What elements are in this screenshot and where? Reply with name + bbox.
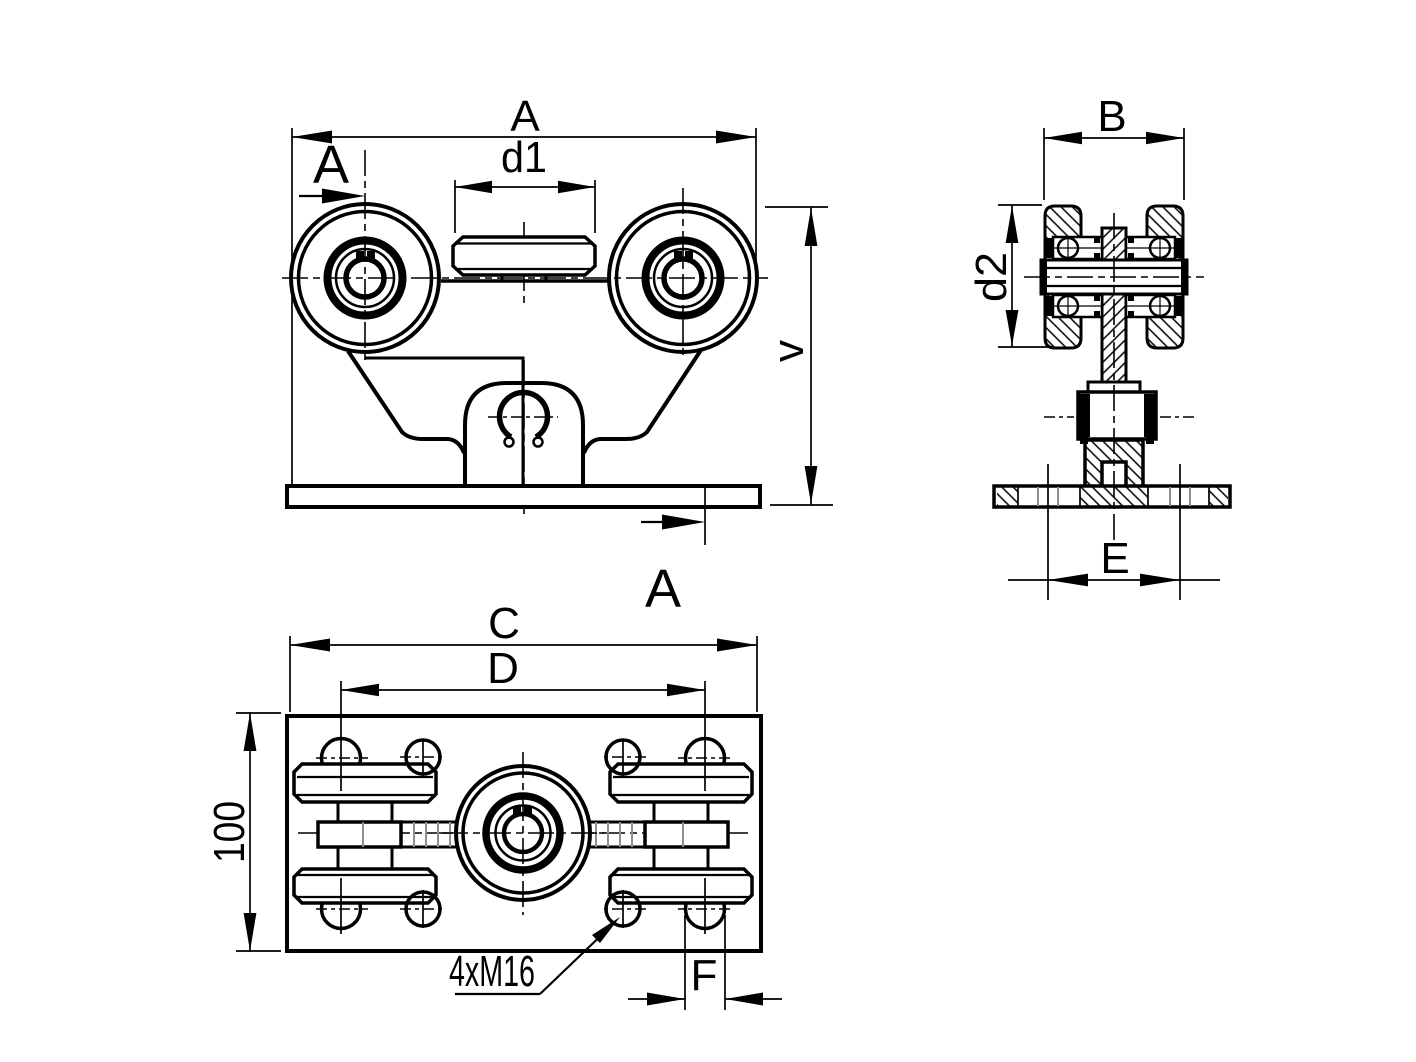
base-plate-section (994, 486, 1230, 507)
base-plate (287, 486, 760, 507)
section-letter-bottom: A (645, 559, 681, 619)
guide-roller (453, 237, 595, 275)
drawing-canvas: A d1 v A (0, 0, 1416, 1062)
plan-view: C D 100 F (205, 599, 782, 1010)
side-section-view: B d2 E (967, 92, 1230, 600)
dim-c-label: C (488, 599, 520, 648)
dimension-c: C (290, 599, 757, 712)
shaft-collar (1044, 382, 1196, 444)
dimension-100: 100 (205, 712, 281, 952)
dim-100-label: 100 (205, 801, 254, 863)
dim-d2-label: d2 (967, 252, 1016, 302)
technical-drawing: A d1 v A (0, 0, 1416, 1062)
bearing-top-left (1046, 237, 1102, 259)
section-letter-top: A (313, 135, 349, 195)
dim-d1-label: d1 (501, 133, 547, 182)
thread-callout-label: 4xM16 (449, 947, 535, 996)
bearing-bottom-left (1046, 295, 1102, 317)
dim-b-label: B (1097, 92, 1126, 141)
dim-d-label: D (487, 644, 519, 693)
dim-f-label: F (691, 951, 718, 1000)
front-view: A d1 v A (282, 92, 833, 619)
dim-v-label: v (764, 340, 813, 362)
bearing-top-right (1126, 237, 1182, 259)
bearing-bottom-right (1126, 295, 1182, 317)
dimension-d2: d2 (967, 205, 1048, 347)
trolley-body (348, 275, 701, 487)
section-cut-top: A (299, 135, 365, 204)
dimension-d1: d1 (455, 133, 595, 233)
dimension-v: v (764, 207, 833, 505)
dimension-b: B (1044, 92, 1184, 200)
dim-e-label: E (1100, 534, 1129, 583)
